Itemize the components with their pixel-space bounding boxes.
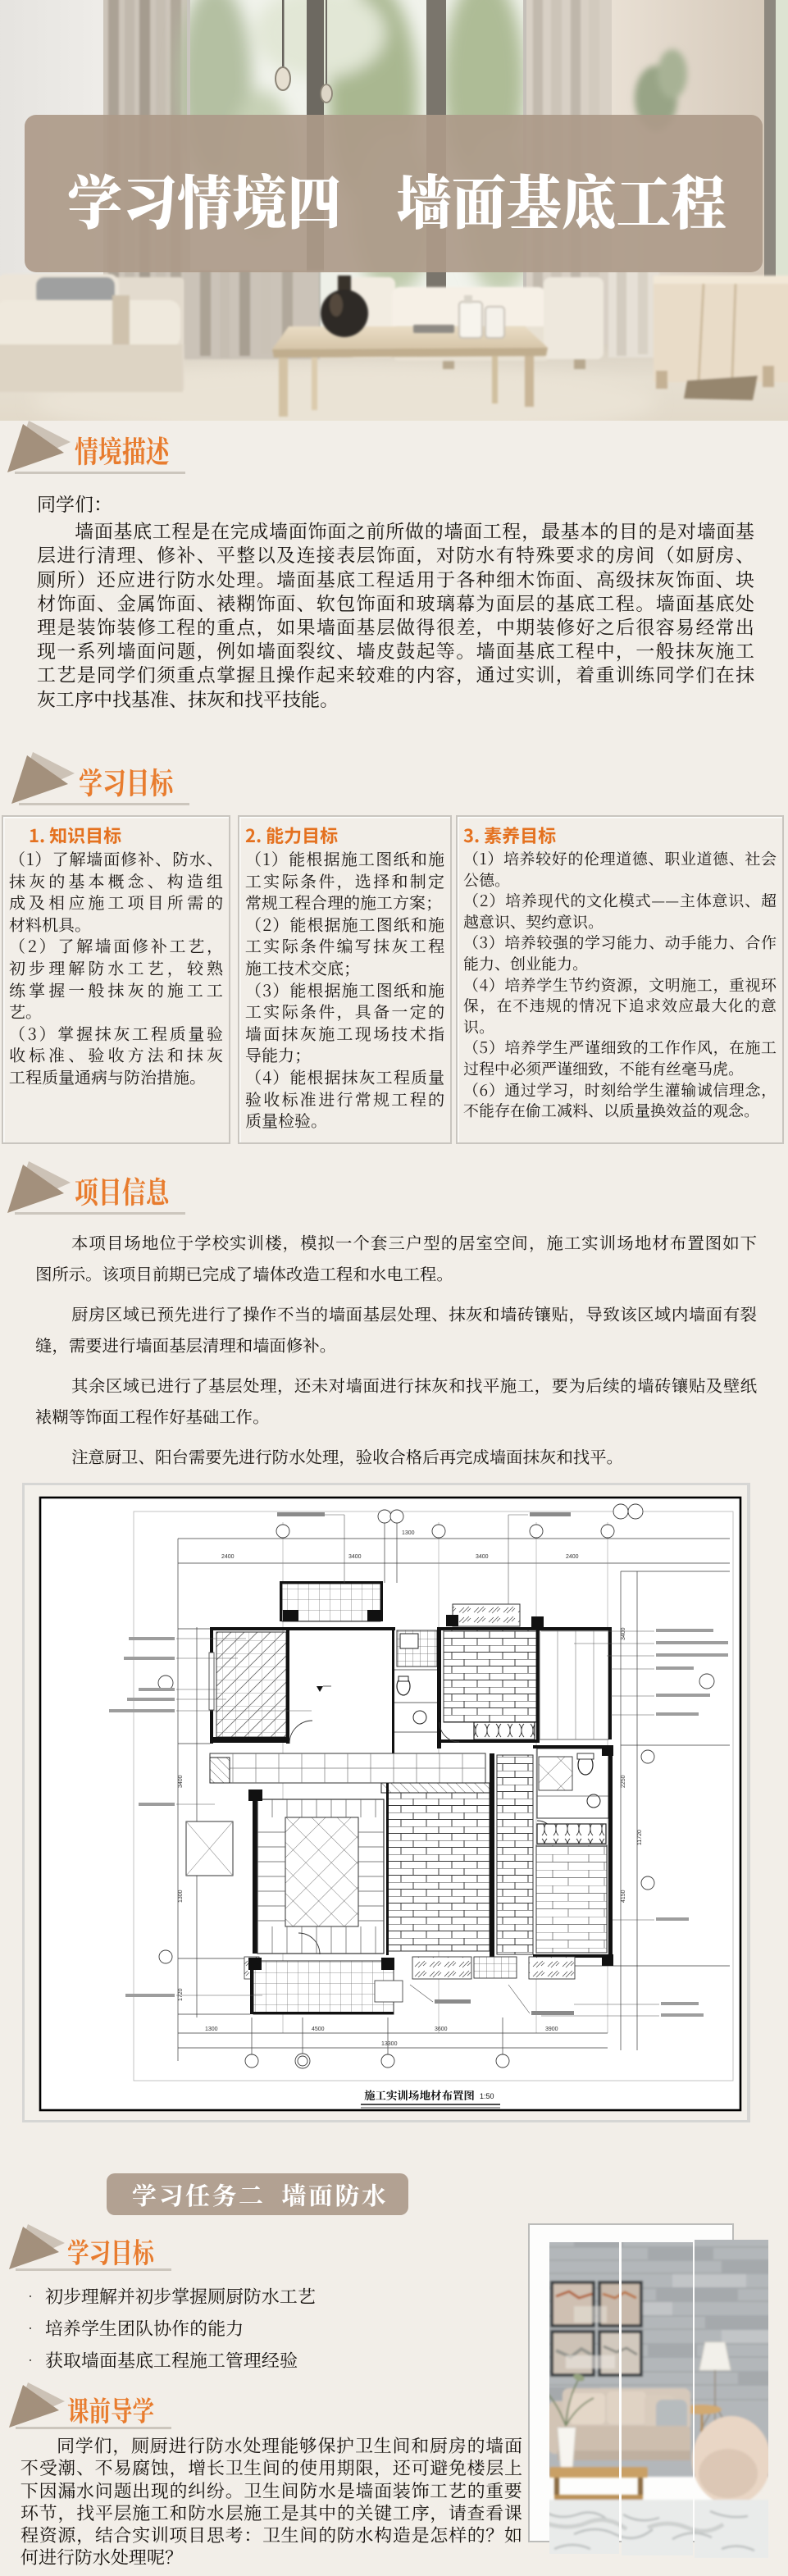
svg-text:3900: 3900 [545, 2027, 558, 2032]
svg-text:3400: 3400 [476, 1554, 489, 1560]
svg-text:施工实训场地材布置图: 施工实训场地材布置图 [364, 2086, 475, 2103]
svg-text:4500: 4500 [312, 2027, 325, 2032]
svg-text:11720: 11720 [637, 1830, 643, 1845]
svg-text:3400: 3400 [621, 1627, 626, 1640]
svg-text:4150: 4150 [621, 1890, 626, 1903]
svg-text:13300: 13300 [381, 2041, 398, 2047]
svg-text:2400: 2400 [566, 1554, 579, 1560]
svg-text:2250: 2250 [621, 1775, 626, 1788]
svg-text:2400: 2400 [221, 1554, 235, 1560]
svg-text:1300: 1300 [205, 2027, 218, 2032]
svg-text:1:50: 1:50 [480, 2092, 494, 2100]
svg-text:1720: 1720 [178, 1988, 184, 2001]
svg-text:1300: 1300 [178, 1890, 184, 1903]
svg-text:3400: 3400 [178, 1775, 184, 1788]
svg-text:3400: 3400 [348, 1554, 362, 1560]
svg-text:3600: 3600 [435, 2027, 448, 2032]
svg-text:1300: 1300 [402, 1530, 415, 1536]
